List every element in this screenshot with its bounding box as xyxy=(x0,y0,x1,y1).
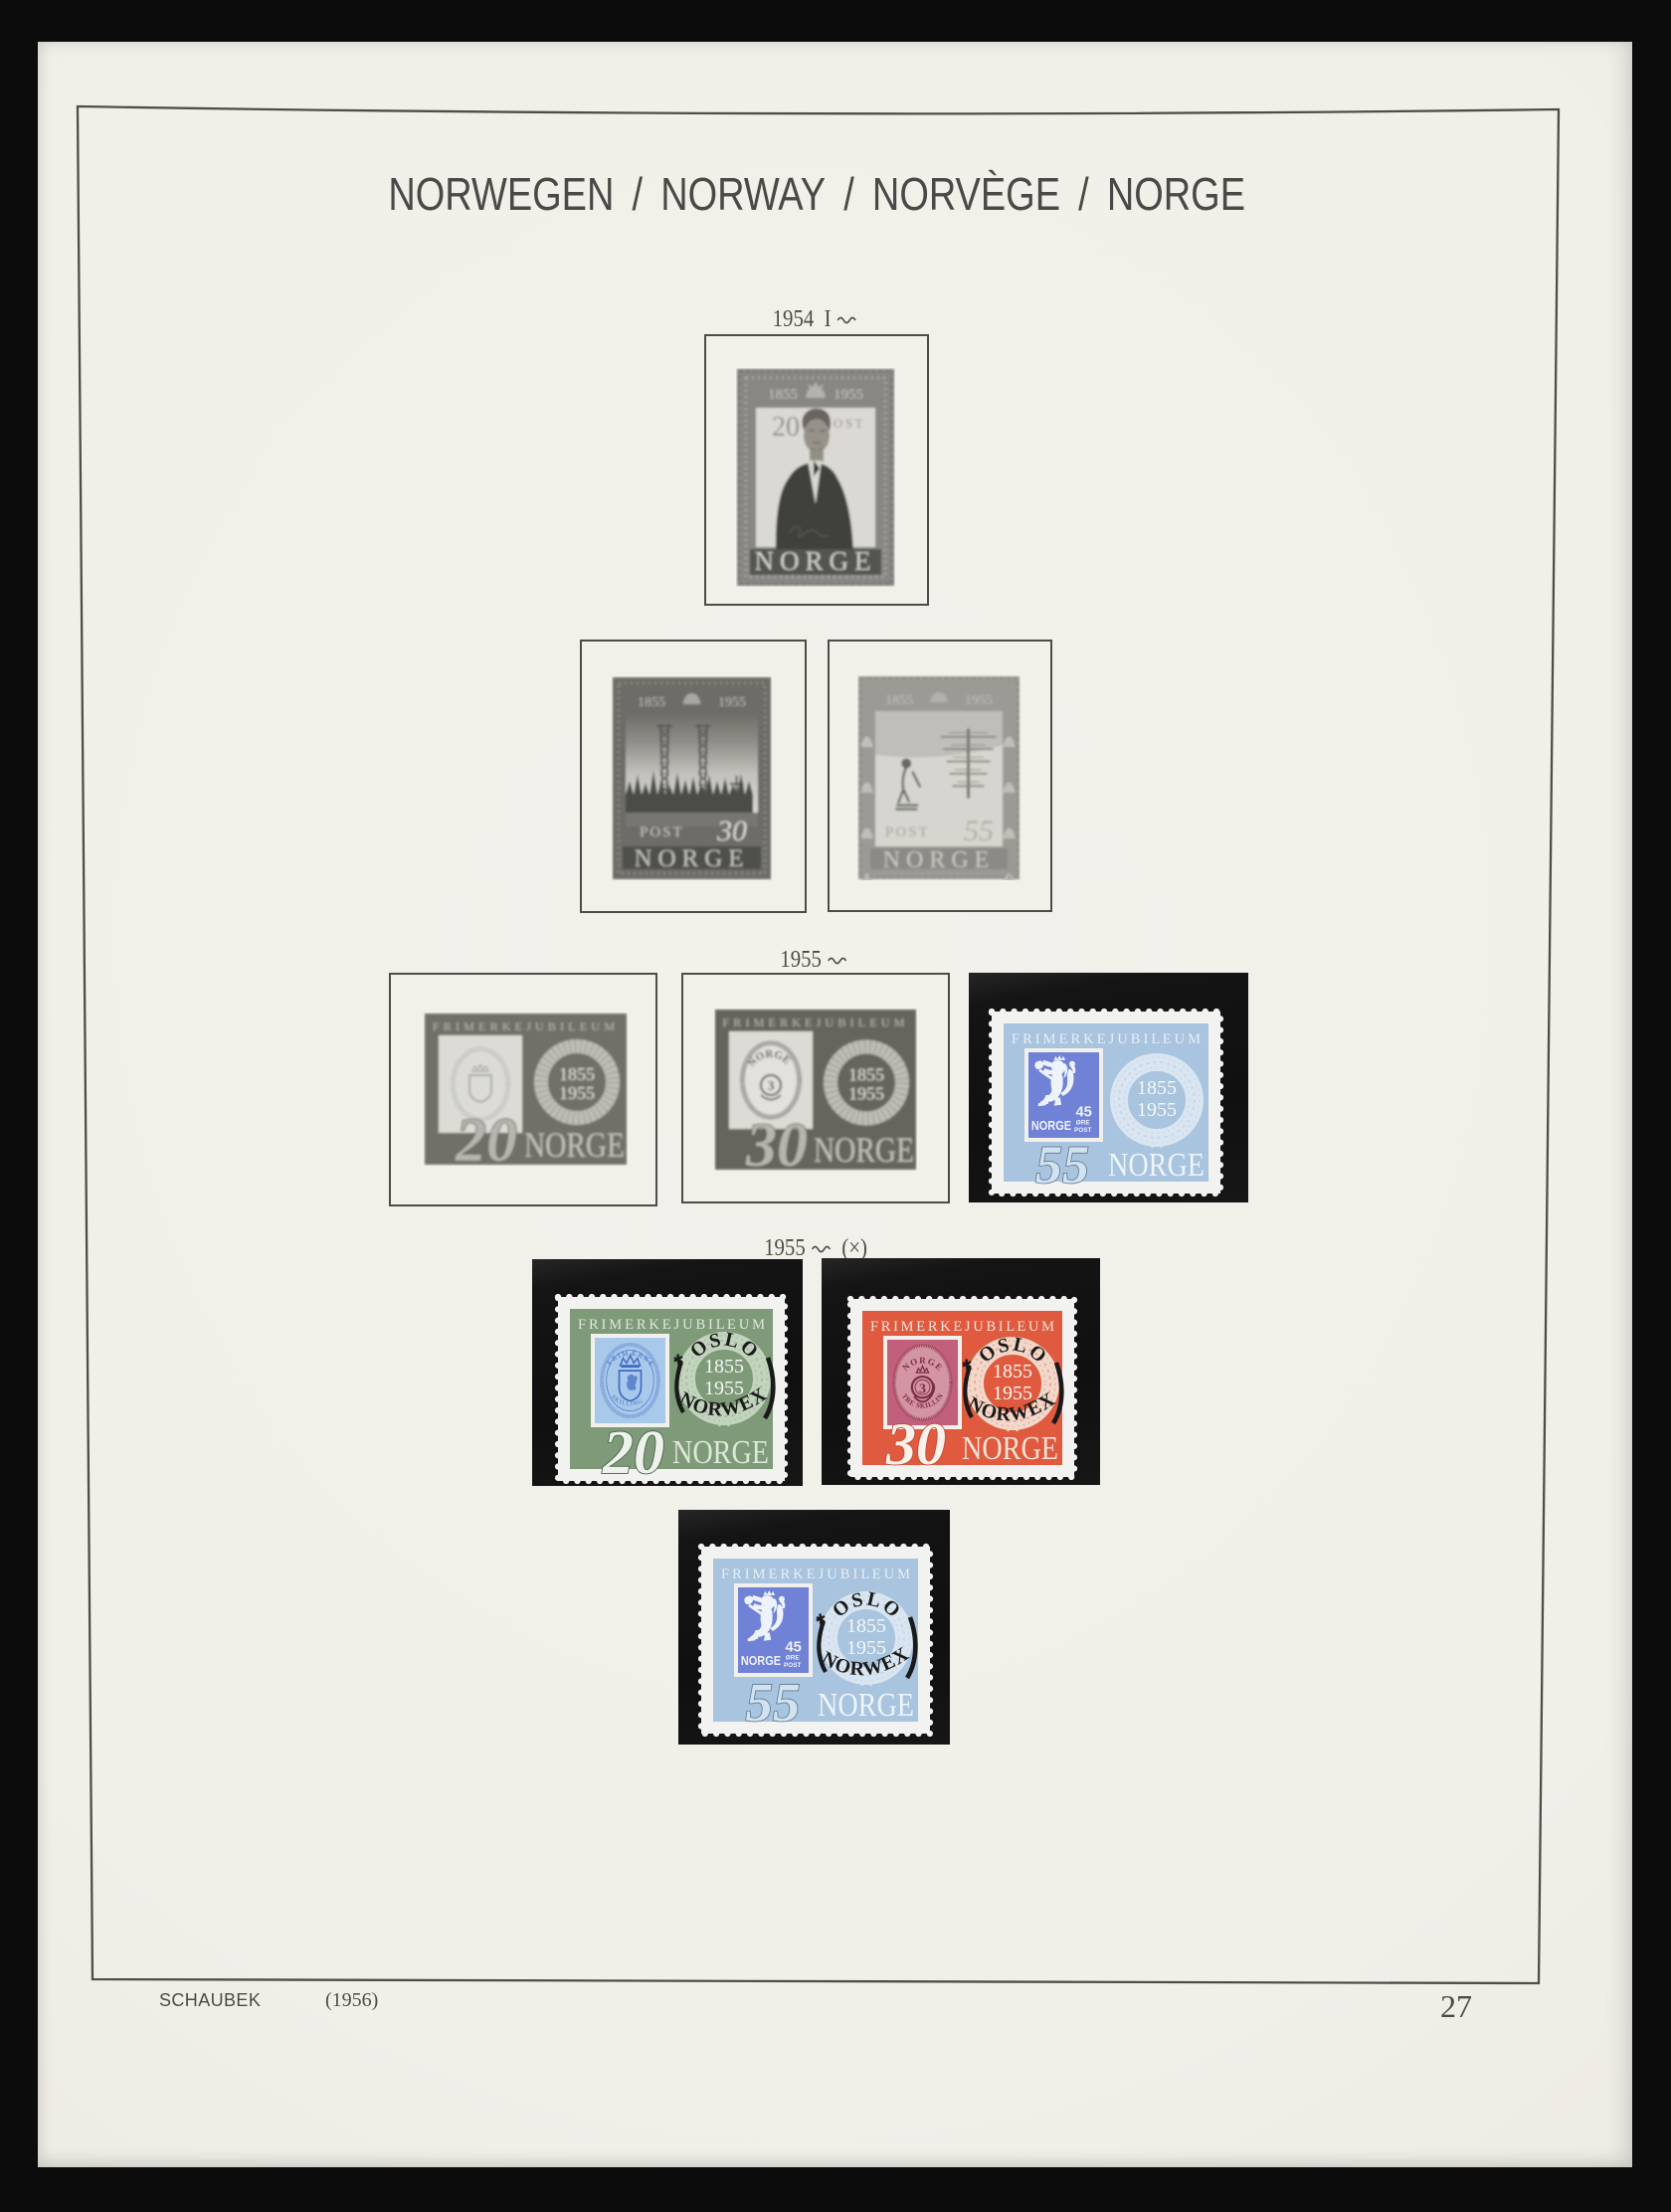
svg-text:1855: 1855 xyxy=(885,693,913,708)
svg-text:1955: 1955 xyxy=(848,1084,884,1104)
svg-text:1955: 1955 xyxy=(834,387,863,403)
svg-text:1855: 1855 xyxy=(559,1064,595,1084)
svg-text:20: 20 xyxy=(602,1419,664,1487)
svg-text:POST: POST xyxy=(885,825,930,840)
svg-text:NORGE: NORGE xyxy=(818,1687,914,1724)
svg-text:1855: 1855 xyxy=(768,387,798,403)
svg-text:NORGE: NORGE xyxy=(672,1434,769,1471)
svg-text:POST: POST xyxy=(1074,1127,1091,1134)
svg-text:F R I M E R K E J U B I L E U: F R I M E R K E J U B I L E U M xyxy=(578,1317,765,1333)
svg-text:NORGE: NORGE xyxy=(741,1654,781,1668)
svg-text:NORGE: NORGE xyxy=(1031,1119,1071,1133)
svg-text:3: 3 xyxy=(919,1382,926,1396)
svg-text:ØRE: ØRE xyxy=(1076,1119,1091,1126)
svg-text:1855: 1855 xyxy=(704,1356,744,1378)
svg-text:1855: 1855 xyxy=(638,695,665,710)
svg-text:1955: 1955 xyxy=(718,695,746,710)
svg-text:NORGE: NORGE xyxy=(883,847,996,873)
svg-text:3: 3 xyxy=(768,1079,775,1094)
svg-text:NORGE: NORGE xyxy=(814,1130,914,1170)
svg-text:NORGE: NORGE xyxy=(755,546,877,576)
svg-text:55: 55 xyxy=(964,815,994,847)
svg-text:F R I M E R K E J U B I L E U: F R I M E R K E J U B I L E U M xyxy=(870,1319,1054,1335)
svg-text:20: 20 xyxy=(455,1107,517,1166)
svg-text:NORGE: NORGE xyxy=(962,1430,1058,1467)
svg-text:1855: 1855 xyxy=(848,1065,884,1085)
svg-text:1955: 1955 xyxy=(1137,1099,1177,1121)
svg-text:55: 55 xyxy=(1035,1135,1089,1195)
svg-text:F R I M E R K E J U B I L E U: F R I M E R K E J U B I L E U M xyxy=(721,1567,910,1582)
svg-text:F R I M E R K E J U B I L E U: F R I M E R K E J U B I L E U M xyxy=(1012,1031,1201,1047)
svg-text:NORGE: NORGE xyxy=(1108,1147,1205,1184)
svg-text:POST: POST xyxy=(640,825,684,840)
svg-text:1955: 1955 xyxy=(559,1083,595,1103)
svg-text:30: 30 xyxy=(716,815,747,847)
svg-text:30: 30 xyxy=(745,1112,808,1171)
svg-text:ØRE: ØRE xyxy=(786,1654,801,1661)
svg-text:1955: 1955 xyxy=(965,693,993,708)
svg-text:30: 30 xyxy=(885,1411,946,1477)
svg-text:POST: POST xyxy=(784,1662,801,1669)
svg-text:1855: 1855 xyxy=(993,1361,1032,1382)
svg-text:20: 20 xyxy=(772,412,800,443)
svg-text:FRIMERKEJUBILEUM: FRIMERKEJUBILEUM xyxy=(433,1019,619,1033)
svg-text:NORGE: NORGE xyxy=(634,845,749,872)
svg-text:55: 55 xyxy=(746,1672,801,1733)
svg-text:NORGE: NORGE xyxy=(524,1125,625,1165)
svg-text:1855: 1855 xyxy=(846,1615,886,1637)
svg-text:FRIMERKEJUBILEUM: FRIMERKEJUBILEUM xyxy=(722,1015,908,1029)
svg-text:45: 45 xyxy=(786,1640,802,1656)
svg-text:45: 45 xyxy=(1076,1105,1092,1121)
svg-text:1855: 1855 xyxy=(1137,1077,1177,1099)
